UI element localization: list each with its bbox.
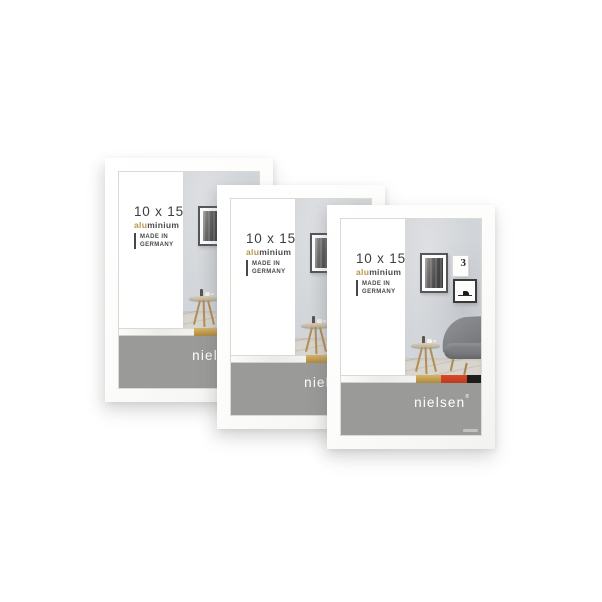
brand-name: nielsen [414, 395, 465, 410]
strip-red-segment [441, 375, 467, 383]
strip-light-segment [231, 355, 306, 363]
table-leg [319, 327, 327, 352]
table-leg [203, 300, 206, 327]
strip-light-segment [341, 375, 416, 383]
size-label: 10 x 15 [134, 204, 184, 219]
side-table [189, 286, 219, 328]
fine-print [463, 429, 478, 432]
origin-line1: MADE IN [362, 280, 395, 288]
strip-black-segment [467, 375, 481, 383]
strip-light-segment [119, 328, 194, 336]
strip-gold-segment [416, 375, 441, 383]
origin-label: MADE IN GERMANY [134, 233, 173, 249]
brand-logo: nielsen® [414, 394, 469, 410]
origin-line1: MADE IN [140, 233, 173, 241]
origin-label: MADE IN GERMANY [356, 280, 395, 296]
material-label: aluminium [134, 220, 179, 230]
table-leg [207, 300, 215, 325]
insert-info-panel: 10 x 15 aluminium MADE IN GERMANY [341, 219, 405, 375]
origin-line2: GERMANY [140, 241, 173, 249]
wall-art-bw-photo [420, 253, 448, 293]
table-leg [193, 300, 201, 325]
frame-insert: 10 x 15 aluminium MADE IN GERMANY 3 [340, 218, 482, 436]
material-alu-text: alu [134, 220, 147, 230]
sofa-seat [444, 343, 481, 359]
material-alu-text: alu [246, 247, 259, 257]
table-leg [315, 327, 318, 354]
wall-art-square-frame [453, 279, 477, 303]
etching-glyph [458, 289, 472, 297]
table-leg [429, 347, 437, 372]
brand-band: nielsen® [341, 383, 481, 435]
side-table [411, 333, 441, 375]
origin-line1: MADE IN [252, 260, 285, 268]
product-photo-canvas: 10 x 15 aluminium MADE IN GERMANY 3 [0, 0, 602, 602]
picture-frame-front: 10 x 15 aluminium MADE IN GERMANY 3 [327, 205, 495, 449]
strip-gold-segment [194, 328, 219, 336]
table-leg [425, 347, 428, 374]
table-leg [305, 327, 313, 352]
material-alu-text: alu [356, 267, 369, 277]
registered-mark: ® [465, 394, 469, 400]
origin-line2: GERMANY [252, 268, 285, 276]
material-rest-text: minium [369, 267, 401, 277]
material-rest-text: minium [259, 247, 291, 257]
size-label: 10 x 15 [246, 231, 296, 246]
insert-info-panel: 10 x 15 aluminium MADE IN GERMANY [231, 199, 295, 355]
origin-line2: GERMANY [362, 288, 395, 296]
insert-info-panel: 10 x 15 aluminium MADE IN GERMANY [119, 172, 183, 328]
material-label: aluminium [356, 267, 401, 277]
sofa [442, 317, 481, 375]
bw-photo-image [425, 258, 443, 288]
origin-label: MADE IN GERMANY [246, 260, 285, 276]
number-3-label: 3 [461, 257, 467, 269]
material-rest-text: minium [147, 220, 179, 230]
color-strip [341, 375, 481, 383]
material-label: aluminium [246, 247, 291, 257]
insert-room-photo: 3 [405, 219, 481, 375]
table-leg [415, 347, 423, 372]
wall-art-number-print: 3 [453, 256, 468, 276]
size-label: 10 x 15 [356, 251, 406, 266]
sofa-leg [450, 359, 454, 371]
